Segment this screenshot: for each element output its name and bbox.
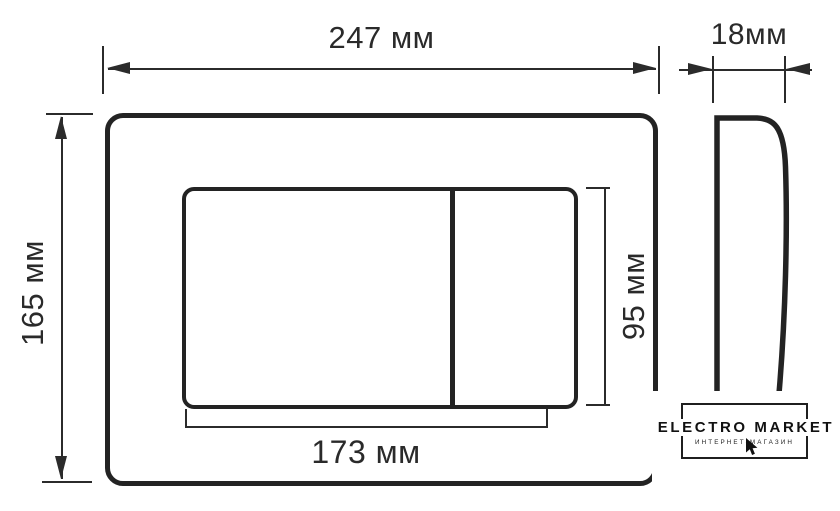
mouse-pointer-icon: [744, 438, 759, 458]
technical-drawing: 247 мм 165 мм 173 мм 95 мм 18мм: [0, 0, 840, 511]
small-flush-button: [455, 191, 574, 405]
overall-height-label: 165 мм: [15, 223, 51, 363]
overall-width-label: 247 мм: [107, 20, 656, 56]
extension-line: [46, 113, 93, 115]
panel-width-label: 173 мм: [216, 434, 516, 470]
arrowhead-left-icon: [107, 62, 130, 74]
bracket-tick: [586, 404, 610, 406]
bracket-tick: [586, 187, 610, 189]
dimension-line: [185, 426, 548, 428]
arrowhead-up-icon: [55, 116, 67, 139]
arrowhead-inward-left-icon: [786, 63, 810, 75]
dimension-panel-height: 95 мм: [560, 180, 670, 420]
extension-line: [102, 46, 104, 94]
side-profile-outline: [717, 118, 786, 405]
dimension-line: [604, 187, 606, 406]
dimension-depth: 18мм: [650, 0, 840, 110]
brand-name: ELECTRO MARKET: [654, 419, 838, 436]
large-flush-button: [186, 191, 450, 405]
depth-label: 18мм: [669, 17, 829, 53]
flush-plate-side-view: [695, 105, 805, 405]
extension-line: [712, 56, 714, 103]
button-panel: [182, 187, 578, 409]
arrowhead-inward-right-icon: [688, 63, 712, 75]
dimension-line: [108, 68, 656, 70]
panel-height-label: 95 мм: [616, 226, 652, 366]
watermark-logo: ELECTRO MARKET ИНТЕРНЕТ-МАГАЗИН: [652, 391, 840, 511]
